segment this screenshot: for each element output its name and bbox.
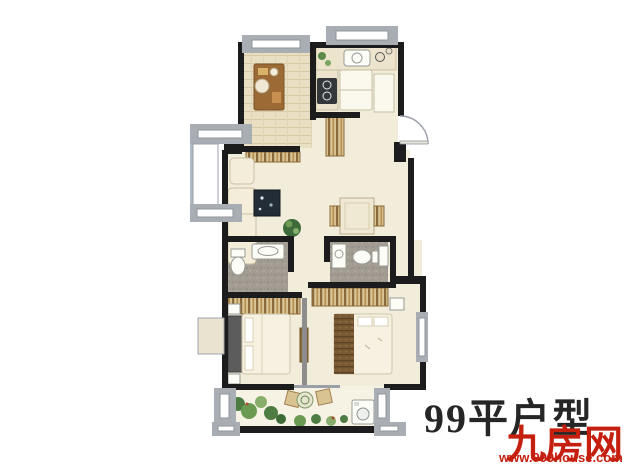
toilet	[353, 250, 371, 264]
pillow	[374, 317, 388, 326]
armchair	[230, 158, 254, 184]
shower-tray	[379, 246, 388, 266]
dining-chair	[330, 206, 340, 226]
study-room	[254, 64, 284, 110]
bedroom-left	[228, 296, 300, 384]
desk-chair	[255, 79, 269, 93]
ac-ledge	[198, 318, 224, 354]
blanket	[334, 314, 354, 374]
pillow	[245, 346, 253, 370]
toilet-tank	[231, 249, 245, 257]
nightstand	[228, 374, 240, 384]
entry-hall	[326, 114, 344, 156]
headboard	[228, 316, 242, 372]
pillow	[245, 318, 253, 342]
pillow	[358, 317, 372, 326]
bedroom-window	[416, 312, 428, 362]
floor-plan-page: 99平户型 九房网 www.999house.com	[0, 0, 625, 468]
plant	[283, 219, 301, 237]
balcony-table	[297, 392, 313, 408]
bathroom-sink	[332, 244, 346, 268]
wardrobe	[312, 288, 388, 306]
study-window	[242, 35, 310, 53]
coffee-table	[254, 190, 280, 216]
balcony-window-left	[214, 388, 236, 424]
entrance-door	[398, 116, 428, 144]
nightstand	[228, 304, 240, 314]
kitchen-appliance	[374, 74, 394, 112]
balcony-chair	[316, 389, 333, 406]
shoe-cabinet	[326, 114, 344, 156]
kitchen-window	[326, 26, 398, 45]
brand-url: www.999house.com	[499, 450, 623, 465]
nightstand	[390, 298, 404, 310]
kitchen	[316, 46, 396, 112]
balcony-sliding-door	[294, 385, 340, 388]
dining-chair	[374, 206, 384, 226]
toilet	[231, 257, 245, 275]
kitchen-sink	[344, 50, 370, 66]
balcony-window-right	[374, 388, 390, 424]
